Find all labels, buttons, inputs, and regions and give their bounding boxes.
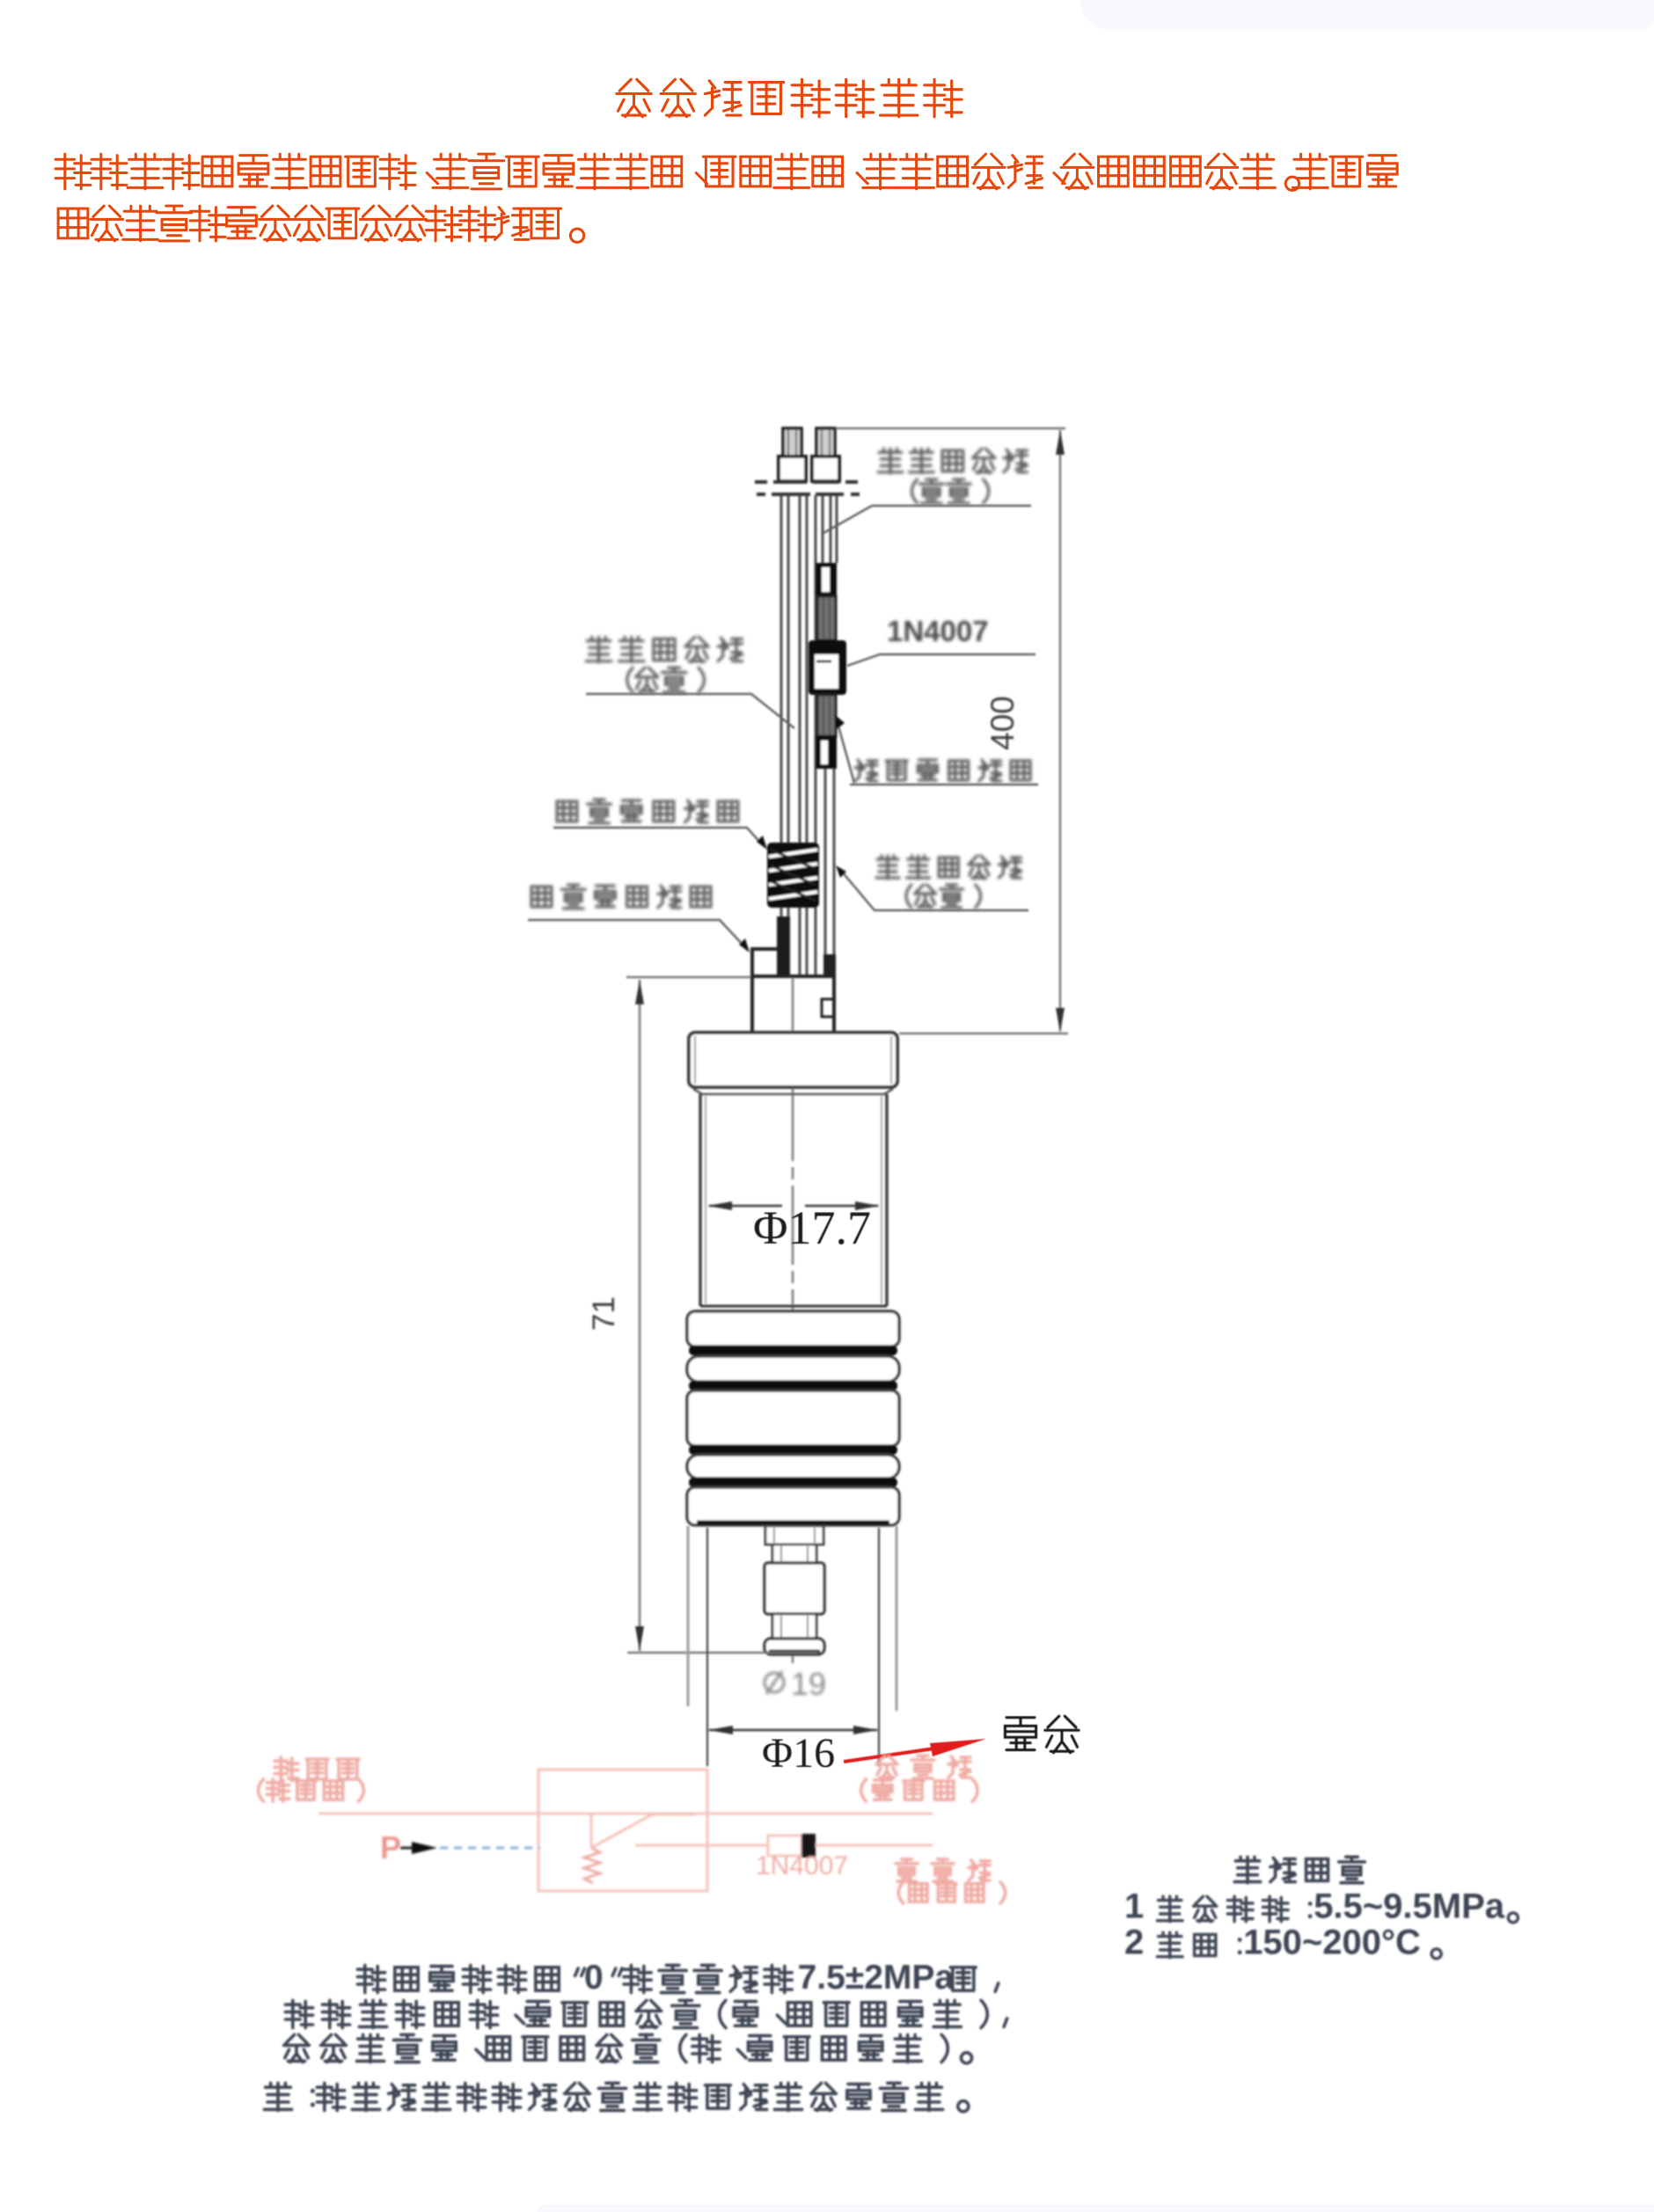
- svg-text:Φ16: Φ16: [762, 1730, 835, 1777]
- svg-text:7.5±2MPa: 7.5±2MPa: [798, 1959, 955, 1997]
- svg-text:71: 71: [587, 1296, 621, 1331]
- svg-text:19: 19: [791, 1666, 826, 1702]
- svg-text:5.5~9.5MPa: 5.5~9.5MPa: [1314, 1887, 1505, 1925]
- svg-text:1N4007: 1N4007: [756, 1851, 848, 1880]
- svg-text:2: 2: [1124, 1923, 1144, 1961]
- svg-text:Φ17.7: Φ17.7: [753, 1201, 871, 1254]
- svg-text:1N4007: 1N4007: [887, 615, 989, 647]
- svg-text:0: 0: [584, 1959, 604, 1997]
- svg-text:150~200°C: 150~200°C: [1243, 1923, 1421, 1961]
- svg-text:400: 400: [984, 696, 1021, 750]
- svg-text:1: 1: [1124, 1887, 1144, 1925]
- svg-text:P: P: [380, 1829, 401, 1865]
